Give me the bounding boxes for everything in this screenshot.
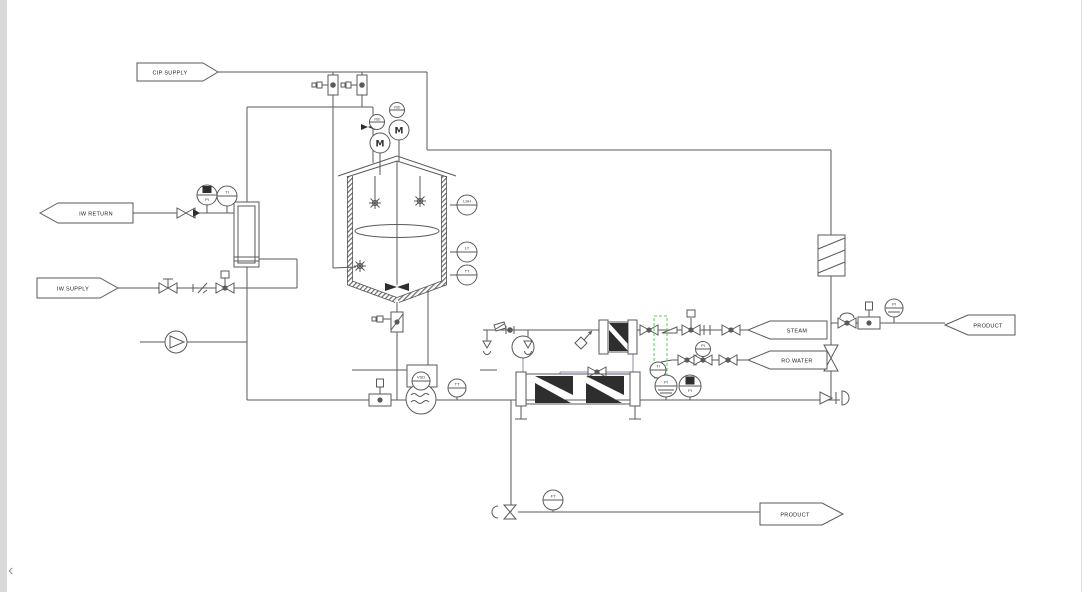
back-chevron[interactable]: ‹ — [8, 563, 13, 579]
instrument-tt: TT — [457, 265, 477, 285]
instrument-ft: FT — [543, 490, 563, 510]
svg-text:PI: PI — [205, 197, 209, 202]
svg-text:TT: TT — [455, 382, 460, 387]
pressure-gauge: PI — [655, 375, 677, 397]
steam-control-valve — [682, 310, 700, 335]
instrument-pi-sealed: PI — [197, 185, 217, 205]
plate-heat-exchanger-bottom — [515, 372, 641, 419]
diagram-svg: M VSD M VSD — [0, 0, 1087, 592]
vsd-label: VSD — [394, 106, 401, 110]
motor-label: M — [376, 140, 385, 150]
inline-valve — [506, 326, 514, 334]
flag-cip-supply: CIP SUPPLY — [137, 63, 218, 81]
iw-supply-hand-valve — [159, 279, 177, 293]
agitator-drive-2: M VSD — [389, 103, 409, 163]
left-panel-strip — [0, 0, 7, 592]
svg-text:PI: PI — [892, 302, 896, 307]
pressure-gauge-sealed: PI — [679, 375, 701, 397]
instrument-vsd: VSD — [412, 372, 430, 390]
svg-text:PI: PI — [688, 388, 692, 393]
instrument-pi-ro: PI — [696, 342, 711, 357]
flag-product-right: PRODUCT — [945, 315, 1015, 335]
svg-text:TI: TI — [656, 364, 660, 369]
flag-product-bottom: PRODUCT — [760, 503, 843, 525]
pid-diagram-page: M VSD M VSD — [0, 0, 1087, 592]
iw-return-valve — [177, 208, 200, 218]
circulation-valve — [588, 367, 606, 377]
iw-pump — [165, 331, 187, 353]
instrument-lt: LT — [457, 242, 477, 262]
steam-isolation-valve — [640, 325, 658, 335]
spray-ball-icon — [369, 197, 381, 209]
diaphragm-valve — [838, 313, 856, 328]
vsd-label: VSD — [374, 118, 381, 122]
right-edge-divider — [1081, 0, 1082, 592]
static-mixer — [818, 235, 845, 276]
iw-supply-control-valve — [216, 271, 234, 293]
bottom-sample-valve — [492, 505, 516, 519]
pipe-network — [118, 72, 945, 512]
svg-text:VSD: VSD — [417, 375, 425, 380]
svg-text:STEAM: STEAM — [787, 329, 808, 335]
instrument-ti: TI — [217, 186, 237, 206]
svg-text:TT: TT — [465, 269, 470, 274]
sample-valve — [483, 341, 491, 355]
jacketed-exchanger — [234, 202, 259, 267]
svg-text:LSH: LSH — [463, 199, 471, 204]
reactor-tank — [333, 156, 456, 300]
svg-text:PI: PI — [664, 380, 668, 385]
svg-text:RO WATER: RO WATER — [781, 359, 812, 365]
instrument-tt-pump: TT — [448, 379, 466, 397]
bottom-line-valve — [369, 379, 391, 406]
svg-text:FT: FT — [551, 494, 556, 499]
plate-heat-exchanger-top — [599, 320, 637, 354]
instrument-pi-product: PI — [885, 299, 903, 317]
svg-text:PRODUCT: PRODUCT — [973, 324, 1003, 330]
motor-label: M — [395, 127, 404, 137]
ro-water-valve — [678, 355, 696, 365]
steam-block-valve — [722, 325, 740, 335]
cip-spray-valve — [312, 75, 338, 95]
cip-spray-valve — [341, 75, 367, 95]
instrument-lsh: LSH — [457, 195, 477, 215]
svg-text:IW RETURN: IW RETURN — [79, 212, 113, 218]
svg-text:PI: PI — [701, 343, 705, 348]
svg-text:LT: LT — [465, 246, 470, 251]
svg-text:CIP SUPPLY: CIP SUPPLY — [153, 71, 188, 77]
hand-valve-arrow — [575, 331, 592, 349]
product-block-valve — [858, 302, 880, 329]
agitator-drive-1: M VSD — [361, 115, 390, 176]
spray-ball-icon — [414, 195, 426, 207]
svg-text:IW SUPPLY: IW SUPPLY — [57, 287, 89, 293]
drain-valve — [820, 391, 849, 405]
circulation-pump — [512, 336, 534, 358]
flag-iw-supply: IW SUPPLY — [37, 278, 118, 298]
flag-iw-return: IW RETURN — [40, 203, 133, 223]
svg-text:TI: TI — [225, 190, 229, 195]
flag-ro-water: RO WATER — [748, 351, 827, 369]
svg-text:PRODUCT: PRODUCT — [780, 513, 810, 519]
ro-water-valve — [719, 355, 737, 365]
spray-ball-icon — [354, 260, 366, 272]
flag-steam: STEAM — [748, 321, 827, 339]
tank-outlet-valve — [372, 312, 403, 332]
